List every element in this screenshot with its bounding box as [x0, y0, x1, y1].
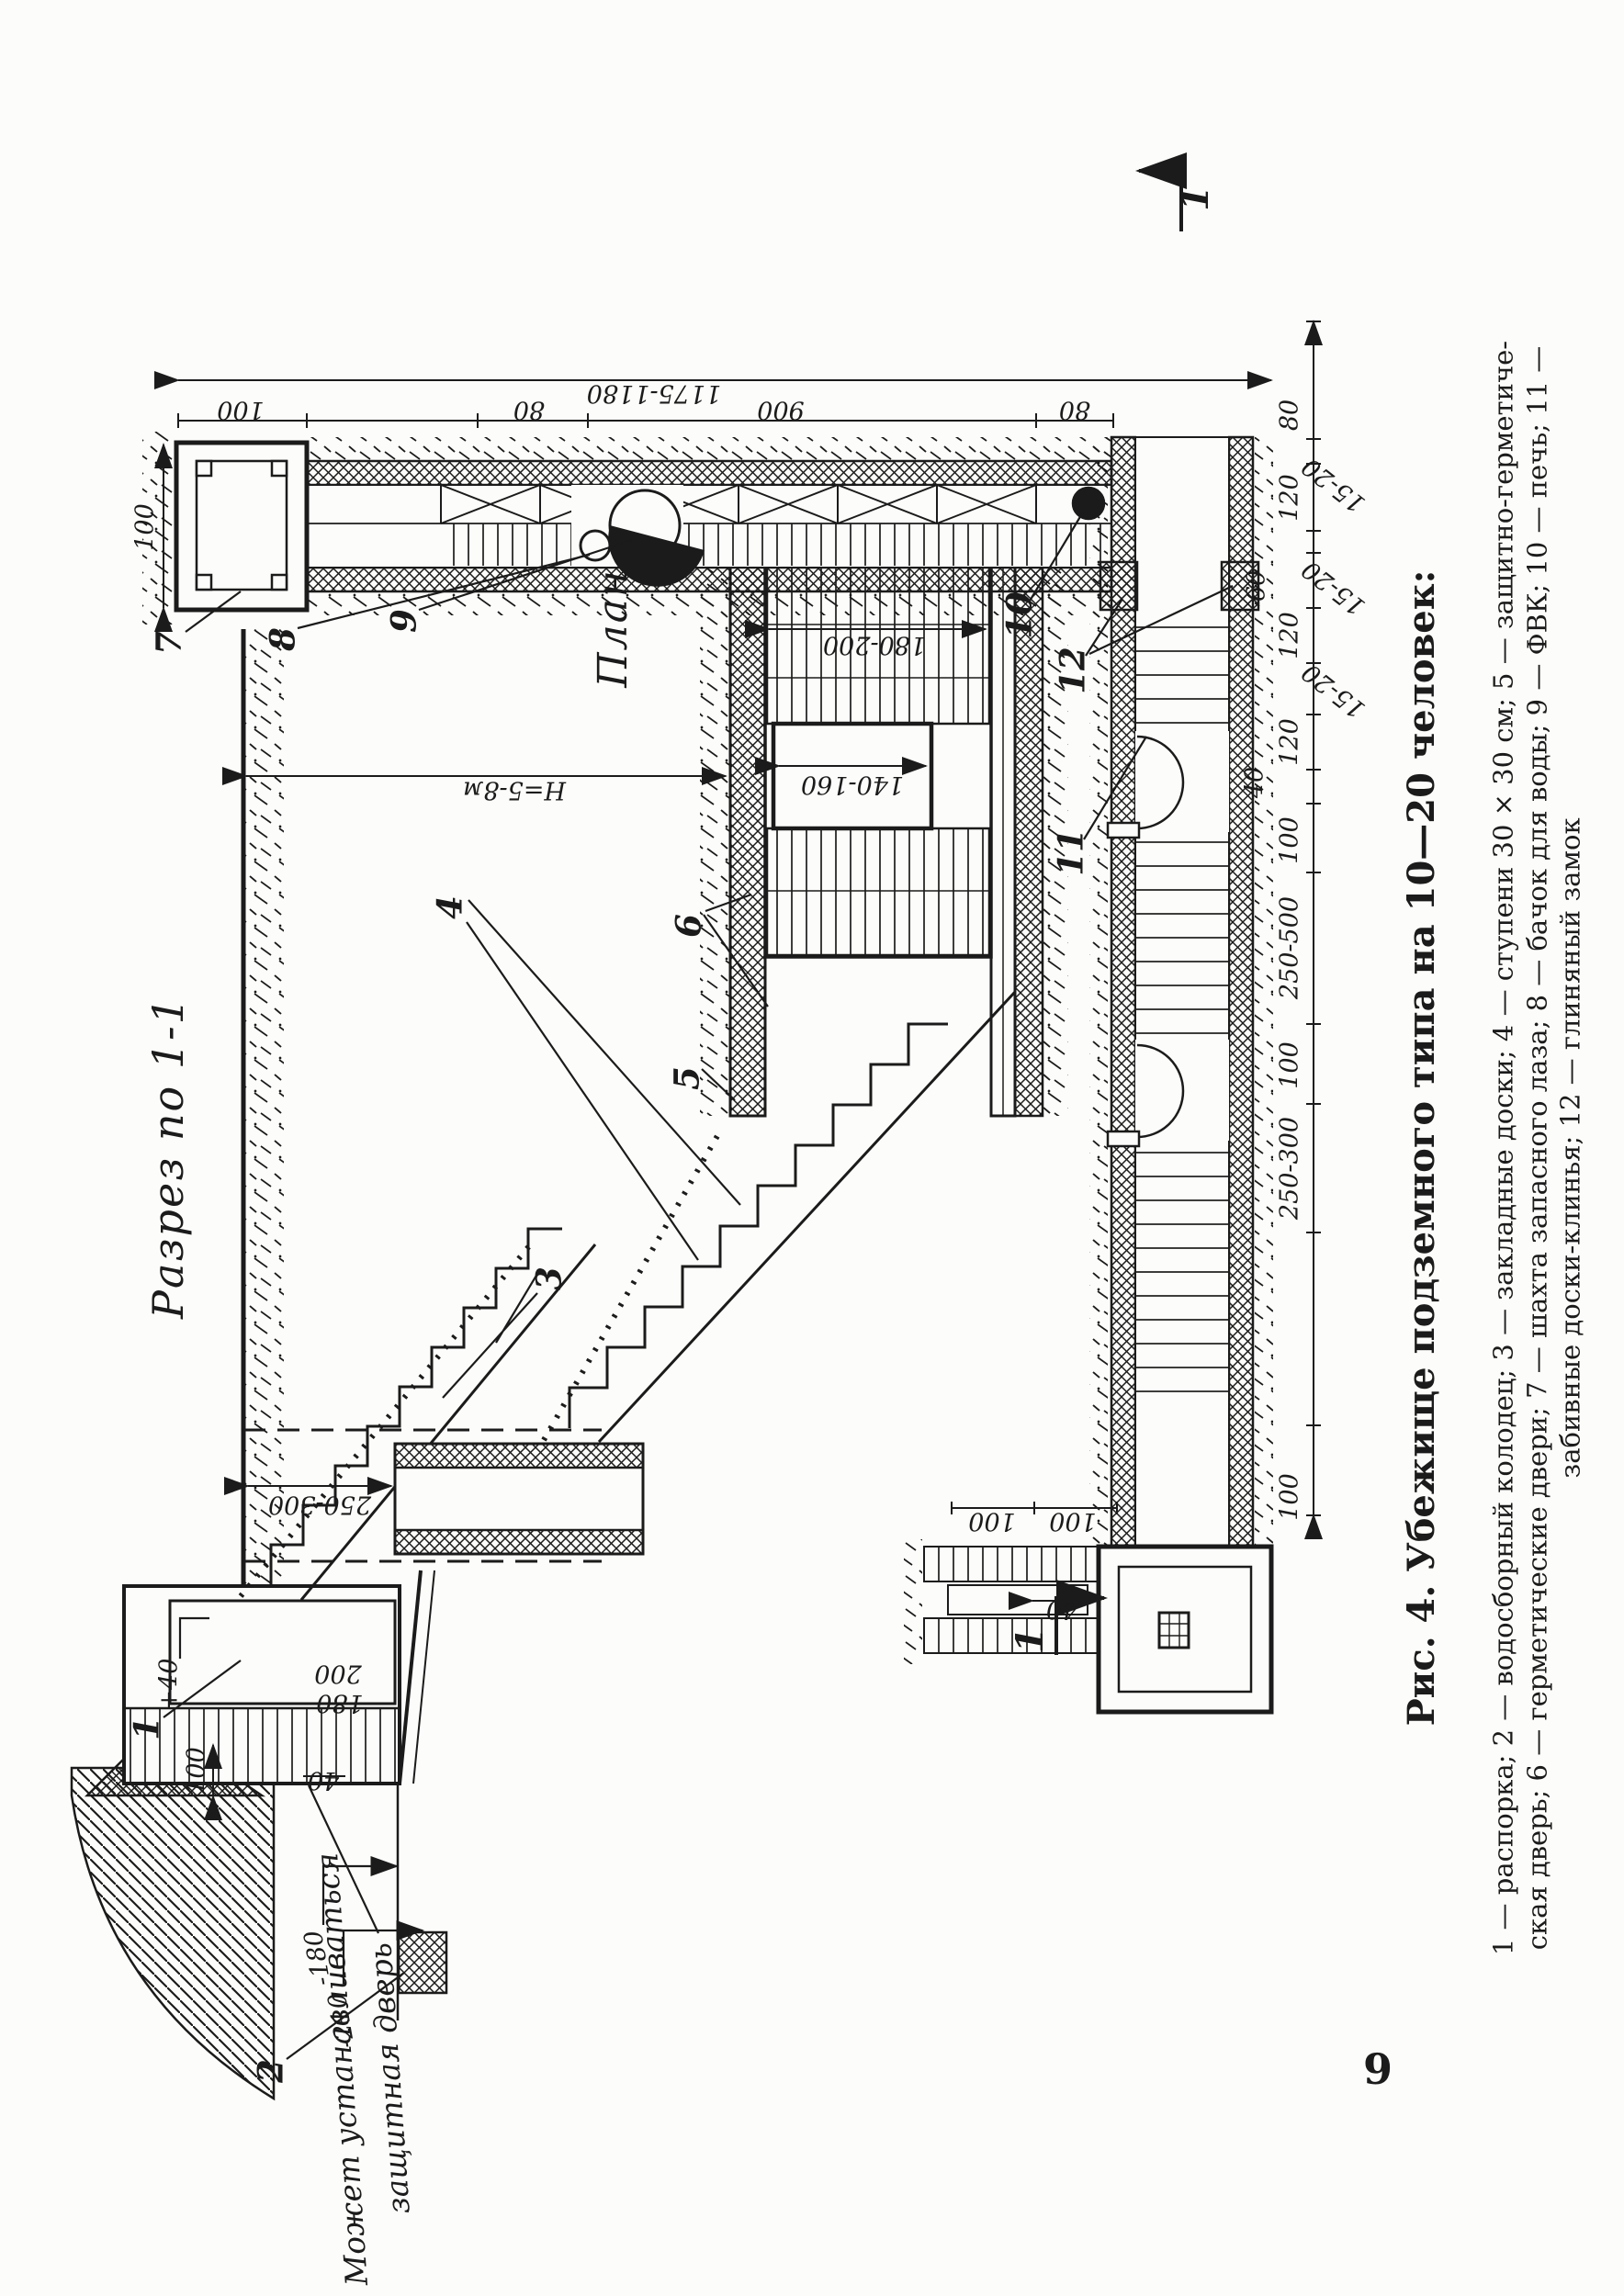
part-label-8: 8 — [266, 627, 300, 651]
section-mark-right: 1 — [1178, 186, 1214, 211]
dim-chain-60: 60 — [1245, 570, 1269, 602]
dim-plus40: +40 — [157, 1659, 182, 1711]
dim-chain-80: 80 — [1278, 400, 1303, 431]
shelter-drawing — [0, 0, 1624, 2296]
part-label-2: 2 — [254, 2059, 288, 2083]
part-label-5: 5 — [671, 1066, 705, 1090]
rotated-figure: Разрез по 1-1 План Может устанавливаться… — [0, 0, 1624, 2296]
dim-140-160-door: 140-160 — [801, 772, 904, 797]
figure-caption-line4: забивные доски-клинья; 12 — глиняный зам… — [1558, 817, 1585, 1478]
dim-180-200-height: 180-200 — [823, 633, 926, 658]
dim-depth-H: Н=5-8м — [463, 778, 566, 803]
dim-chain-120-b: 120 — [1278, 612, 1303, 659]
figure-caption-title: Рис. 4. Убежище подземного типа на 10—20… — [1404, 570, 1440, 1727]
book-page: Разрез по 1-1 План Может устанавливаться… — [0, 0, 1624, 2296]
plan-view-title: План — [593, 568, 634, 688]
dim-chain-40: 40 — [1243, 767, 1268, 798]
section-view — [72, 565, 1068, 2099]
dim-80-end: 80 — [1059, 398, 1090, 422]
dim-80-fvk: 80 — [513, 398, 545, 422]
dim-100-entry-b: 100 — [1049, 1509, 1097, 1534]
part-label-11: 11 — [1054, 828, 1088, 876]
dim-1175-1180-total: 1175-1180 — [587, 381, 722, 406]
part-label-4: 4 — [434, 895, 468, 919]
leader-lines — [164, 511, 1233, 2059]
dim-chain-100-b: 100 — [1278, 1041, 1303, 1089]
figure-caption-line2: 1 — распорка; 2 — водосборный колодец; 3… — [1491, 341, 1517, 1955]
section-view-title: Разрез по 1-1 — [147, 996, 189, 1319]
dim-100-shaft-side: 100 — [217, 398, 265, 422]
dim-chain-120-c: 120 — [1278, 474, 1303, 522]
dim-chain-120-a: 120 — [1278, 718, 1303, 766]
dim-100-entry-a: 100 — [968, 1509, 1016, 1534]
part-label-10: 10 — [1003, 591, 1037, 639]
section-mark-left: 1 — [1012, 1627, 1049, 1653]
dim-100-shaft-top: 100 — [133, 503, 158, 551]
part-label-7: 7 — [152, 631, 186, 655]
dim-chain-250-500: 250-500 — [1278, 896, 1303, 999]
dim-180-door: 180 — [316, 1691, 364, 1716]
dim-40-door: 40 — [308, 1768, 339, 1793]
part-label-1: 1 — [130, 1716, 164, 1740]
dim-chain-100-c: 100 — [1278, 816, 1303, 864]
dim-chain-100-a: 100 — [1278, 1473, 1303, 1521]
part-label-3: 3 — [533, 1266, 567, 1290]
part-label-6: 6 — [672, 914, 706, 938]
page-number: 9 — [1363, 2044, 1393, 2094]
figure-caption-line3: ская дверь; 6 — герметические двери; 7 —… — [1525, 346, 1551, 1951]
dim-100-door: 100 — [185, 1747, 209, 1795]
dim-900-gallery: 900 — [757, 398, 805, 422]
dim-250-300-pit: 250-300 — [268, 1492, 371, 1517]
part-label-9: 9 — [388, 609, 422, 633]
dim-200-door: 200 — [314, 1661, 362, 1686]
dim-chain-250-300: 250-300 — [1278, 1117, 1303, 1220]
dim-40-entry: 40 — [1046, 1597, 1077, 1622]
part-label-12: 12 — [1056, 647, 1090, 694]
